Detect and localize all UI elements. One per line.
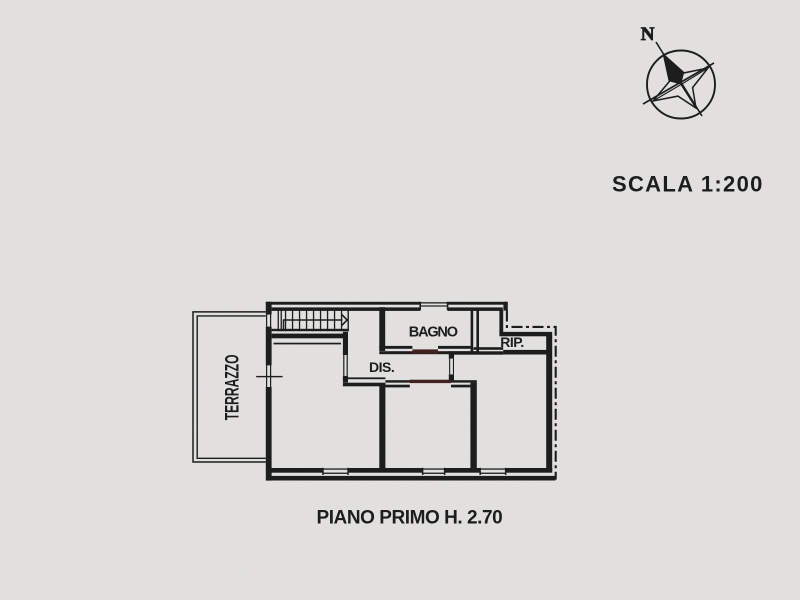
svg-text:N: N (641, 24, 655, 45)
svg-text:BAGNO: BAGNO (409, 325, 458, 341)
svg-text:SCALA 1:200: SCALA 1:200 (612, 172, 764, 197)
svg-text:RIP.: RIP. (500, 334, 523, 350)
svg-text:TERRAZZO: TERRAZZO (222, 355, 244, 421)
svg-text:DIS.: DIS. (369, 359, 394, 375)
svg-text:PIANO PRIMO H. 2.70: PIANO PRIMO H. 2.70 (317, 508, 503, 529)
